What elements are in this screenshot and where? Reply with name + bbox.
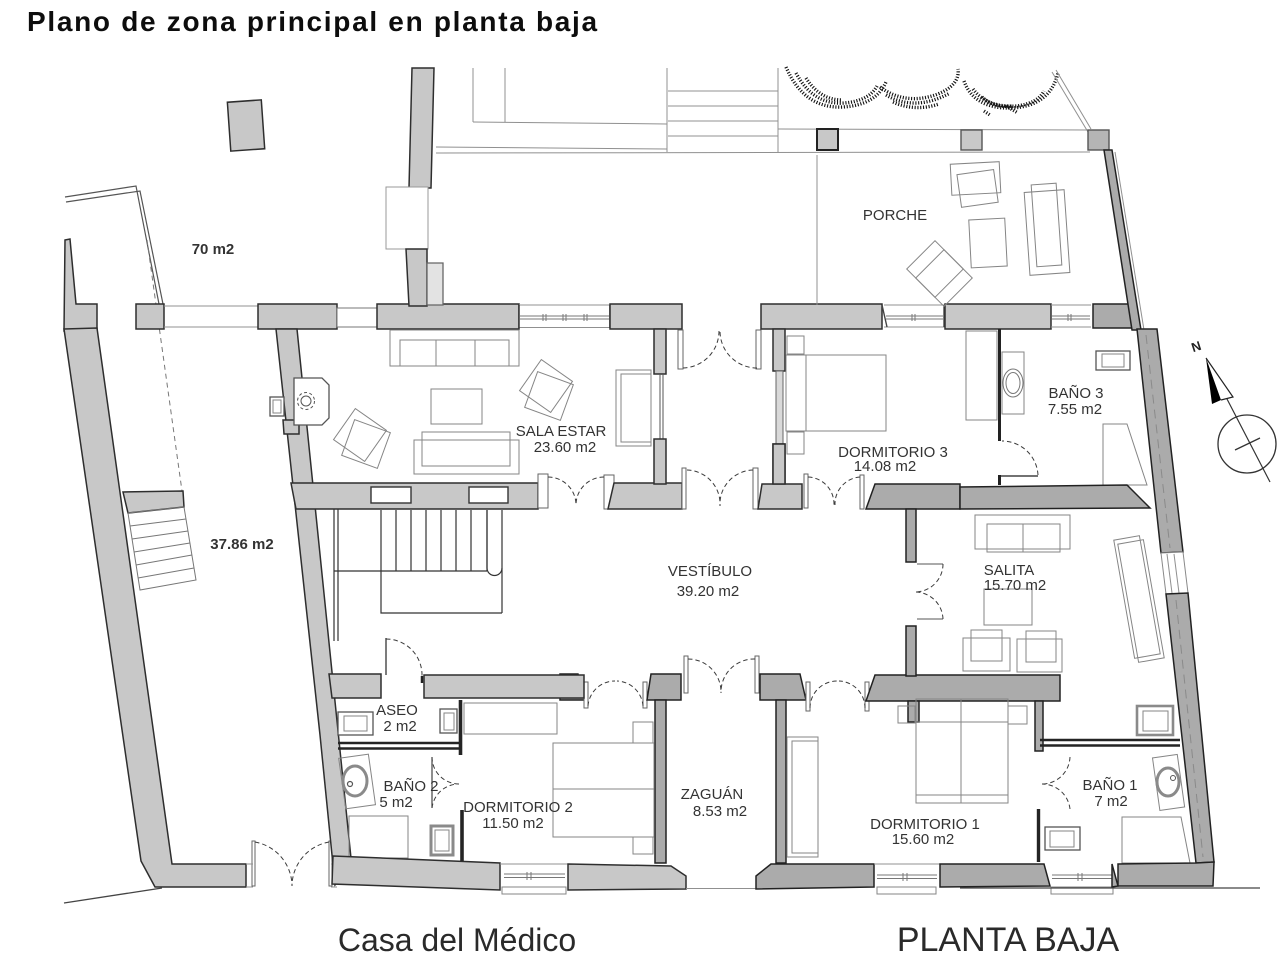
svg-text:Casa del Médico: Casa del Médico [338, 922, 576, 958]
svg-text:11.50 m2: 11.50 m2 [482, 815, 543, 832]
svg-text:15.60 m2: 15.60 m2 [892, 831, 955, 848]
svg-text:37.86 m2: 37.86 m2 [210, 536, 273, 553]
svg-text:BAÑO 1: BAÑO 1 [1082, 777, 1137, 794]
svg-text:7 m2: 7 m2 [1094, 793, 1127, 810]
svg-text:N: N [1189, 338, 1203, 355]
svg-text:ASEO: ASEO [376, 702, 418, 719]
svg-text:ZAGUÁN: ZAGUÁN [681, 786, 744, 803]
svg-text:SALA ESTAR: SALA ESTAR [516, 423, 607, 440]
svg-text:39.20 m2: 39.20 m2 [677, 583, 740, 600]
svg-text:BAÑO 3: BAÑO 3 [1048, 385, 1103, 402]
svg-text:7.55 m2: 7.55 m2 [1048, 401, 1102, 418]
svg-text:5 m2: 5 m2 [379, 794, 412, 811]
svg-text:Plano de zona principal en pla: Plano de zona principal en planta baja [27, 6, 599, 37]
svg-text:PLANTA BAJA: PLANTA BAJA [897, 921, 1120, 959]
svg-text:2 m2: 2 m2 [383, 718, 416, 735]
svg-text:VESTÍBULO: VESTÍBULO [668, 563, 752, 580]
svg-text:DORMITORIO 2: DORMITORIO 2 [463, 799, 573, 816]
svg-text:23.60 m2: 23.60 m2 [534, 439, 597, 456]
svg-text:14.08 m2: 14.08 m2 [854, 458, 917, 475]
svg-text:PORCHE: PORCHE [863, 207, 927, 224]
svg-text:70 m2: 70 m2 [192, 241, 235, 258]
svg-text:15.70 m2: 15.70 m2 [984, 577, 1047, 594]
svg-text:BAÑO 2: BAÑO 2 [383, 778, 438, 795]
svg-text:8.53 m2: 8.53 m2 [693, 803, 747, 820]
